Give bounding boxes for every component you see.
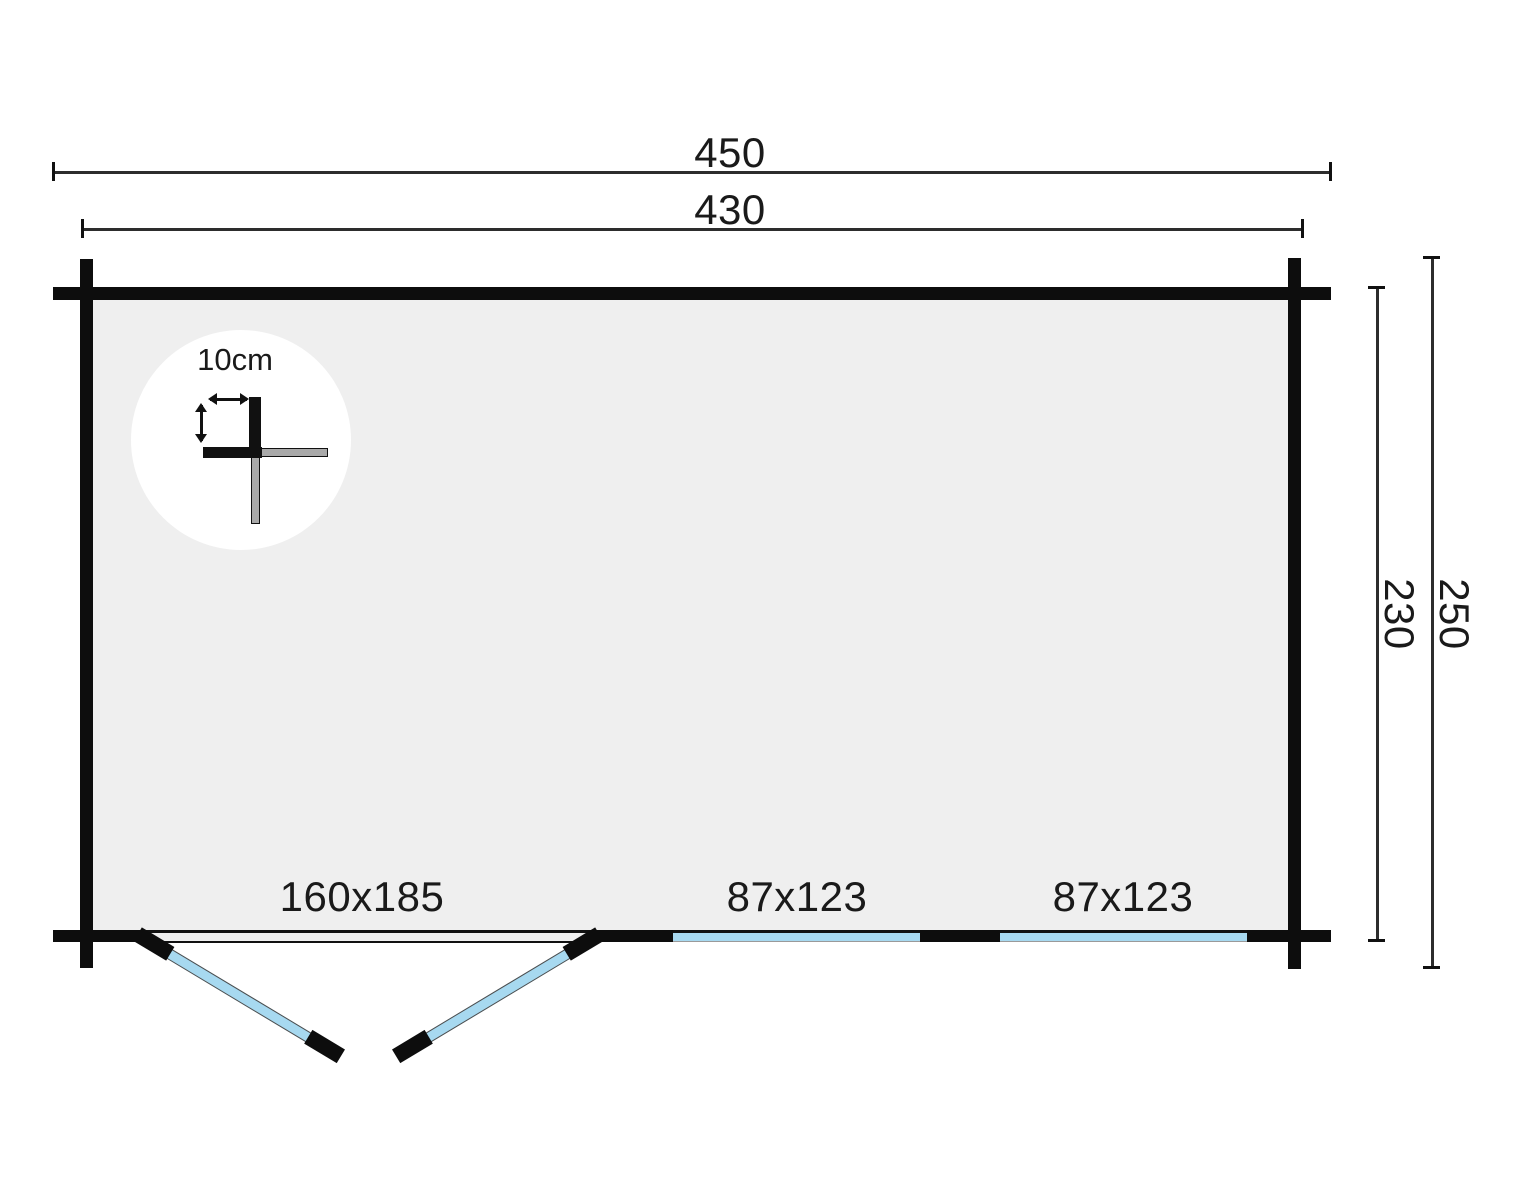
- door-edge-block: [304, 1030, 345, 1063]
- dimension-line-230: [1376, 287, 1379, 941]
- door-leaf-right: [395, 931, 600, 1060]
- log-end-vertical: [251, 455, 260, 524]
- dimension-tick: [1301, 219, 1304, 238]
- door-glass: [164, 947, 319, 1046]
- dim-430-label: 430: [630, 188, 830, 232]
- dimension-line-450: [54, 171, 1332, 174]
- dimension-line-430: [83, 228, 1303, 231]
- wall-bottom-segment: [595, 930, 673, 942]
- window-size-label: 87x123: [1023, 875, 1223, 919]
- wall-thickness-label: 10cm: [165, 342, 305, 378]
- dim-450-label: 450: [630, 131, 830, 175]
- dimension-tick: [1368, 286, 1385, 289]
- log-end-horizontal: [257, 448, 328, 457]
- dimension-line-250: [1431, 258, 1434, 969]
- window-left: [673, 930, 920, 942]
- wall-top: [53, 287, 1331, 300]
- wall-bottom-segment: [53, 930, 142, 942]
- dimension-tick: [1423, 966, 1440, 969]
- wall-bottom-segment: [1247, 930, 1331, 942]
- height-arrow-icon: [200, 405, 203, 441]
- width-arrow-icon: [210, 398, 247, 401]
- window-size-label: 87x123: [697, 875, 897, 919]
- wall-detail-circle: 10cm: [131, 330, 351, 550]
- door-edge-block: [392, 1030, 433, 1063]
- wall-right: [1288, 258, 1301, 969]
- door-glass: [418, 947, 573, 1046]
- door-size-label: 160x185: [262, 875, 462, 919]
- dimension-tick: [52, 162, 55, 181]
- window-right: [1000, 930, 1247, 942]
- door-leaf-left: [136, 931, 341, 1060]
- dim-230-label: 230: [1377, 514, 1421, 714]
- dimension-tick: [1329, 162, 1332, 181]
- door-opening: [142, 930, 595, 943]
- dimension-tick: [81, 219, 84, 238]
- wall-section-horizontal: [203, 447, 262, 458]
- wall-left: [80, 259, 93, 968]
- wall-bottom-segment: [920, 930, 1000, 942]
- dimension-tick: [1368, 939, 1385, 942]
- floor-plan-canvas: 450 430 230 250: [0, 0, 1530, 1188]
- dim-250-label: 250: [1432, 514, 1476, 714]
- dimension-tick: [1423, 256, 1440, 259]
